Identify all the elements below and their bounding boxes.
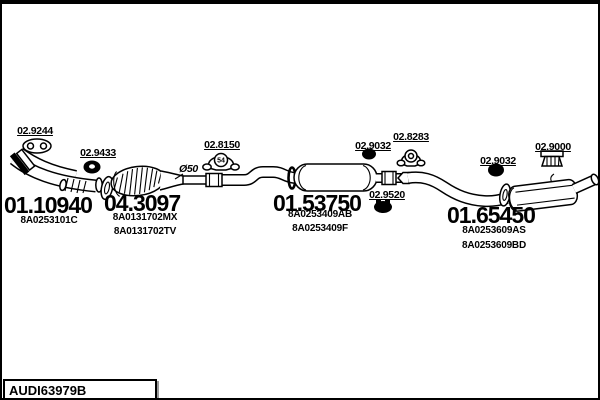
donut-gasket-icon [84, 161, 101, 174]
clamp-icon-2 [397, 150, 425, 166]
oem-number: 8A0253409AB [288, 209, 352, 220]
bracket-mount-icon [541, 151, 563, 166]
part-label-02-9000: 02.9000 [535, 141, 571, 153]
oem-number: 8A0253609AS [462, 225, 525, 236]
exhaust-system-diagram-page: 54 [0, 0, 600, 400]
mid-pipe-drawing [206, 172, 295, 187]
footer-divider [2, 2, 598, 4]
muffler-exit-drawing [376, 172, 409, 185]
oem-number: 8A0131702MX [113, 212, 178, 223]
oem-number: 8A0253609BD [462, 240, 526, 251]
oem-number: 8A0253409F [292, 223, 348, 234]
rear-pipe-drawing [408, 177, 507, 201]
part-label-02-9032-mid: 02.9032 [355, 140, 391, 152]
part-label-02-9433: 02.9433 [80, 147, 116, 159]
drawing-number-box: AUDI63979B [3, 379, 157, 400]
drawing-number: AUDI63979B [9, 383, 86, 398]
pipe-diameter-annotation: Ø50 [179, 163, 198, 175]
part-label-02-8150: 02.8150 [204, 139, 240, 151]
part-label-02-8283: 02.8283 [393, 131, 429, 143]
oem-number: 8A0131702TV [114, 226, 176, 237]
part-label-02-9032-rear: 02.9032 [480, 155, 516, 167]
clamp-size-label: 54 [217, 158, 225, 165]
part-label-02-9520: 02.9520 [369, 189, 405, 201]
oem-number: 8A0253101C [21, 215, 78, 226]
part-label-02-9244: 02.9244 [17, 125, 53, 137]
clamp-icon: 54 [203, 154, 239, 171]
centre-muffler-drawing [289, 164, 378, 191]
rubber-hanger-icon-9520 [374, 199, 392, 213]
flange-gasket-icon [23, 139, 51, 153]
